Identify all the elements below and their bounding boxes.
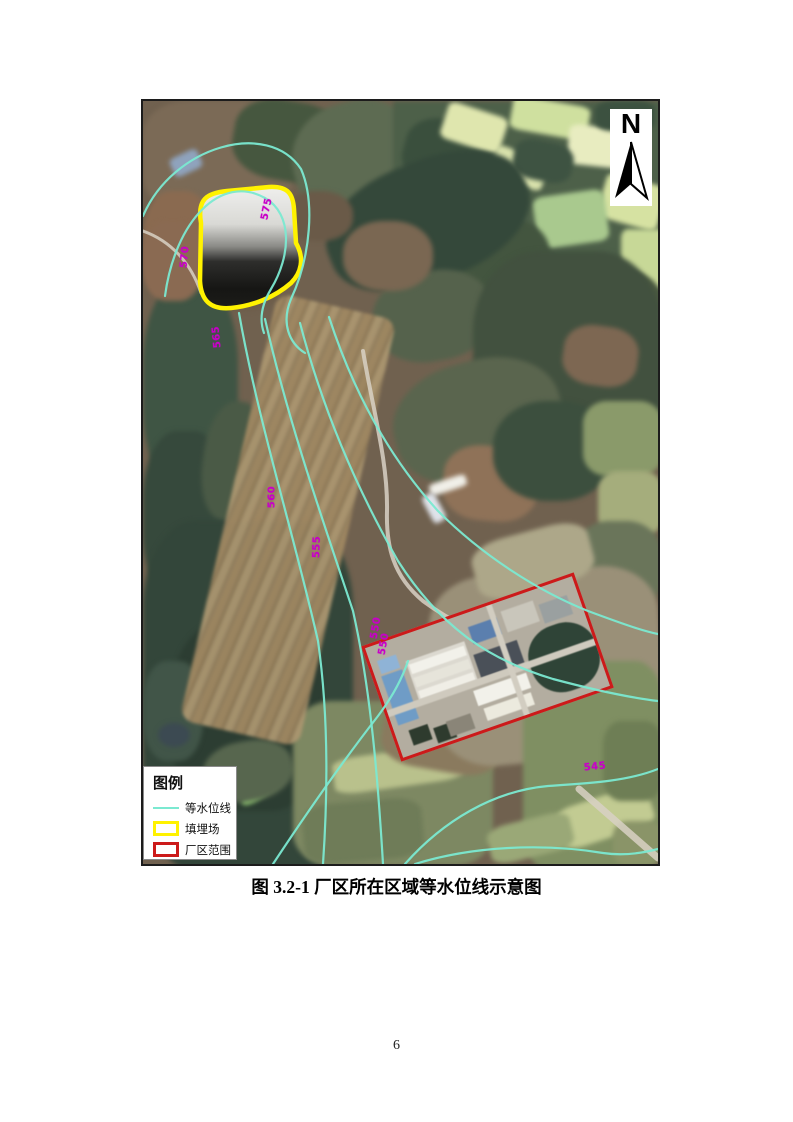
legend-label: 厂区范围 [185,842,231,858]
contour-line-symbol-icon [153,807,180,809]
legend-label: 填埋场 [185,821,220,837]
map-legend: 图例 等水位线填埋场厂区范围 [143,766,237,860]
legend-item-plant-area: 厂区范围 [153,839,236,860]
plant-building [501,600,540,632]
legend-item-landfill: 填埋场 [153,818,236,839]
terrain-patch [143,221,203,301]
terrain-patch [158,723,190,747]
terrain-patch [613,821,660,866]
landfill-symbol-icon [153,821,180,836]
north-label: N [621,109,641,139]
figure-caption: 图 3.2-1 厂区所在区域等水位线示意图 [0,874,793,899]
terrain-patch [301,796,426,866]
contour-elevation-label: 560 [267,486,278,508]
contour-elevation-label: 570 [179,245,192,268]
terrain-patch [583,401,660,476]
legend-item-contour-line: 等水位线 [153,797,236,818]
terrain-patch [343,221,433,291]
north-arrow-icon [610,139,652,201]
legend-title: 图例 [153,772,236,793]
plant-building [446,713,476,737]
map-figure: 575570565560555550550545 图例 等水位线填埋场厂区范围 … [141,99,660,866]
page-number: 6 [0,1038,793,1054]
contour-elevation-label: 555 [311,536,323,559]
contour-elevation-label: 565 [211,325,224,348]
plant-building [408,724,432,746]
contour-elevation-label: 545 [583,760,606,773]
legend-items: 等水位线填埋场厂区范围 [153,797,236,860]
plant-building [538,595,573,624]
legend-label: 等水位线 [185,800,231,816]
compass: N [610,109,652,206]
document-page: 575570565560555550550545 图例 等水位线填埋场厂区范围 … [0,0,793,1122]
plant-area-symbol-icon [153,842,180,857]
terrain-patch [283,191,353,241]
terrain-patch [603,721,660,801]
